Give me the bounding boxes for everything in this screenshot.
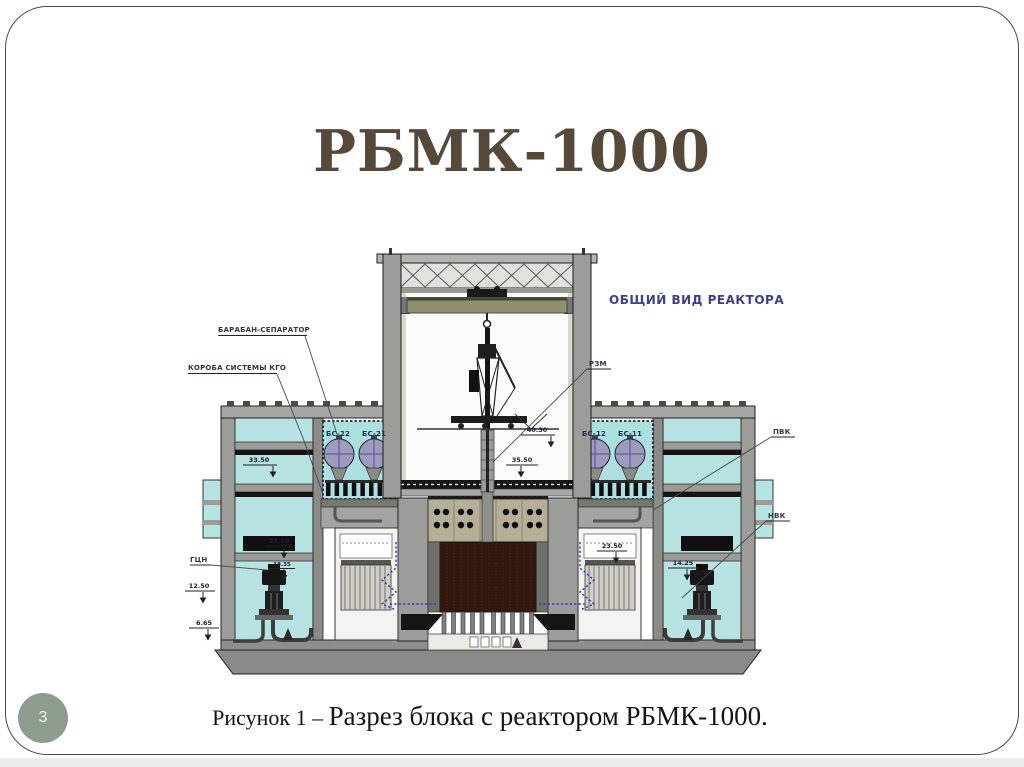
- pipe-gallery-right: [578, 507, 653, 528]
- label-bs-22: БС-22: [326, 430, 350, 438]
- elevation-23-50-right: 23.50: [602, 542, 623, 550]
- label-bs-11: БС-11: [618, 430, 642, 438]
- left-annex: [203, 480, 221, 538]
- right-equipment-box: [681, 536, 733, 551]
- left-wing: [203, 418, 323, 641]
- slide-title: РБМК-1000: [0, 118, 1024, 185]
- elevation-12-50: 12.50: [189, 582, 210, 590]
- hall-roof-slab: [377, 254, 597, 263]
- elevation-14-25: 14.25: [673, 559, 694, 567]
- right-annex: [755, 480, 773, 538]
- caption-figure-number: Рисунок 1 –: [212, 705, 328, 730]
- caption-text: Разрез блока с реактором РБМК-1000.: [329, 701, 768, 731]
- label-drum-separator: БАРАБАН-СЕПАРАТОР: [218, 326, 310, 334]
- page-number: 3: [39, 709, 48, 727]
- lower-cone-left: [401, 614, 443, 630]
- right-wing: [653, 418, 773, 641]
- label-kgo-ducts: КОРОБА СИСТЕМЫ КГО: [188, 364, 286, 372]
- reactor-diagram: БАРАБАН-СЕПАРАТОР КОРОБА СИСТЕМЫ КГО РЗМ…: [185, 248, 803, 678]
- pipe-gallery-left: [321, 507, 398, 528]
- right-inner-column: [653, 418, 663, 640]
- label-bs-21: БС-21: [362, 430, 386, 438]
- hall-wall-left: [383, 254, 401, 498]
- label-pvk: ПВК: [773, 428, 791, 436]
- core-support-columns: [442, 612, 534, 634]
- reactor-cross-section-svg: БАРАБАН-СЕПАРАТОР КОРОБА СИСТЕМЫ КГО РЗМ…: [185, 248, 803, 678]
- page-number-badge: 3: [18, 693, 68, 743]
- bottom-strip: [0, 758, 1024, 767]
- diagram-heading: ОБЩИЙ ВИД РЕАКТОРА: [609, 292, 784, 307]
- side-room-left: [335, 528, 398, 640]
- elevation-18-35: 18.35: [273, 562, 291, 568]
- label-nvk: НВК: [768, 512, 786, 520]
- hall-wall-right: [573, 254, 591, 498]
- roof-truss: [401, 263, 573, 293]
- left-outer-wall: [221, 418, 235, 640]
- label-bs-12: БС-12: [582, 430, 606, 438]
- lower-cone-right: [533, 614, 575, 630]
- figure-caption: Рисунок 1 – Разрез блока с реактором РБМ…: [0, 701, 1002, 732]
- elevation-35-50: 35.50: [512, 456, 533, 464]
- label-gcn: ГЦН: [190, 556, 207, 564]
- rzm-telescope: [481, 430, 494, 542]
- elevation-40-30: 40.30: [527, 426, 548, 434]
- label-rzm: РЗМ: [589, 360, 607, 368]
- left-inner-column: [313, 418, 323, 640]
- elevation-23-50-left: 23.50: [269, 537, 290, 545]
- elevation-33-50: 33.50: [249, 456, 270, 464]
- elevation-6-65: 6.65: [196, 619, 213, 627]
